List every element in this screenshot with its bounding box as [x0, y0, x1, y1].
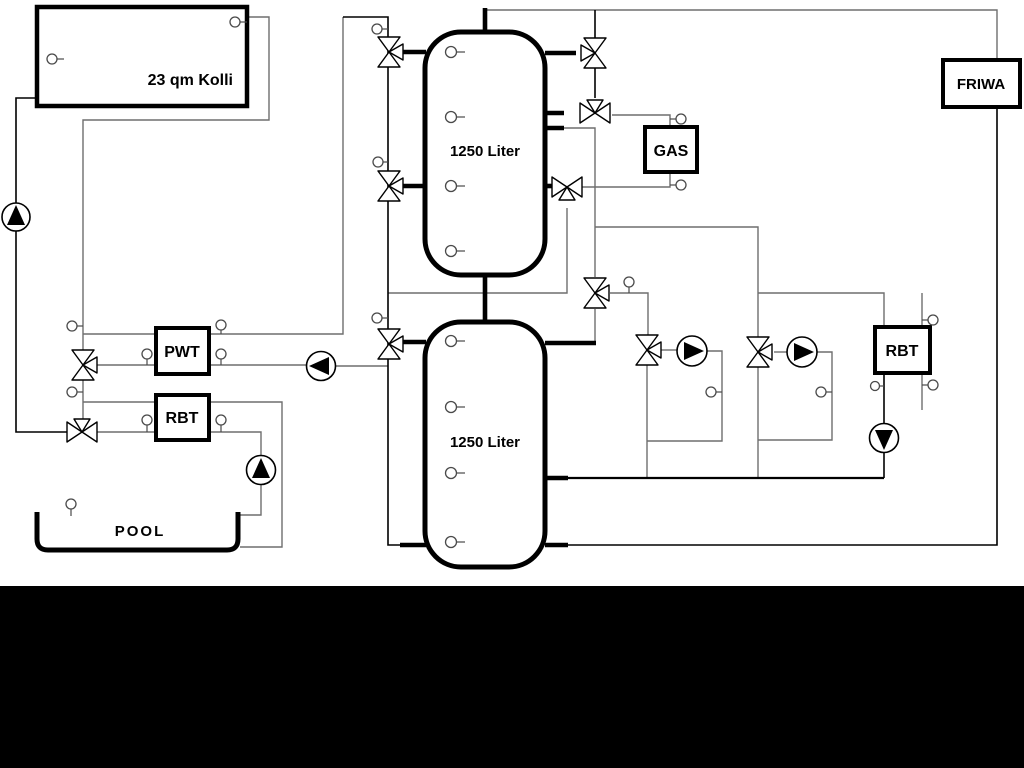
mixing-valve[interactable] [584, 278, 609, 308]
sensor-pwt-right-top [216, 320, 226, 334]
solar-pump[interactable] [2, 203, 30, 231]
heating-circuit-1-valve[interactable] [636, 335, 661, 365]
pipe-left-chain [343, 17, 400, 545]
sensor-chain-mid [373, 157, 388, 167]
sensor-pwt-left-bottom [142, 349, 152, 365]
sensor-rbt-left-top [67, 387, 83, 397]
vessels [37, 7, 1020, 567]
sensor-hc2-flow [816, 387, 832, 397]
gas-return-valve[interactable] [552, 177, 582, 200]
rbt-right-pump[interactable] [870, 424, 899, 453]
heating-circuit-2-pump[interactable] [787, 337, 817, 367]
sensor-gas-return [670, 180, 686, 190]
collector-label: 23 qm Kolli [148, 72, 233, 89]
rbt-left-label: RBT [166, 410, 199, 427]
pipe-supply-ladder2 [595, 227, 758, 337]
tank1-left-mid-valve[interactable] [378, 171, 403, 201]
sensor-rbt-right-top [922, 315, 938, 325]
sensor-hc1-flow [706, 387, 722, 397]
sensor-hc1-supply [624, 277, 634, 293]
pipe-pool-pump-out [238, 484, 261, 515]
tank1-right-top-valve[interactable] [581, 38, 606, 68]
rbt-left-valve[interactable] [67, 419, 97, 442]
pipe-solar-return [16, 98, 68, 432]
tank1-label: 1250 Liter [450, 143, 520, 160]
bottom-black-band [0, 586, 1024, 768]
collector-box [37, 7, 247, 106]
sensor-pwt-right-bottom [216, 349, 226, 365]
pipe-supply-riser [563, 128, 595, 277]
pwt-valve[interactable] [72, 350, 97, 380]
schematic-canvas: 23 qm Kolli 1250 Liter 1250 Liter PWT RB… [0, 0, 1024, 768]
gas-label: GAS [654, 143, 689, 160]
pwt-pump[interactable] [307, 352, 336, 381]
heating-circuit-1-pump[interactable] [677, 336, 707, 366]
hydraulic-diagram: 23 qm Kolli 1250 Liter 1250 Liter PWT RB… [0, 0, 1024, 768]
sensor-rbt-right-bottom [922, 380, 938, 390]
pipe-hc1-supply [610, 293, 648, 336]
pipe-friwa-return [568, 107, 997, 545]
tank1-left-top-valve[interactable] [378, 37, 403, 67]
pool-label: POOL [115, 523, 166, 540]
sensor-rbt-left-out [216, 415, 226, 432]
sensor-gas-supply [670, 114, 686, 124]
sensor-chain-top [372, 24, 388, 34]
friwa-label: FRIWA [957, 76, 1005, 93]
heating-circuit-2-valve[interactable] [747, 337, 772, 367]
pwt-label: PWT [164, 344, 200, 361]
sensor-rbt-left-in [142, 415, 152, 432]
sensor-pool [66, 499, 76, 516]
pipe-supply-rbt-right [758, 293, 884, 327]
rbt-right-label: RBT [886, 343, 919, 360]
tank2-left-valve[interactable] [378, 329, 403, 359]
pool-pump[interactable] [247, 456, 276, 485]
gas-supply-valve[interactable] [580, 100, 610, 123]
sensor-pwt-left-top [67, 321, 83, 331]
sensor-chain-tank2 [372, 313, 388, 323]
tank2-label: 1250 Liter [450, 434, 520, 451]
sensor-rbt-right-return [871, 382, 885, 391]
